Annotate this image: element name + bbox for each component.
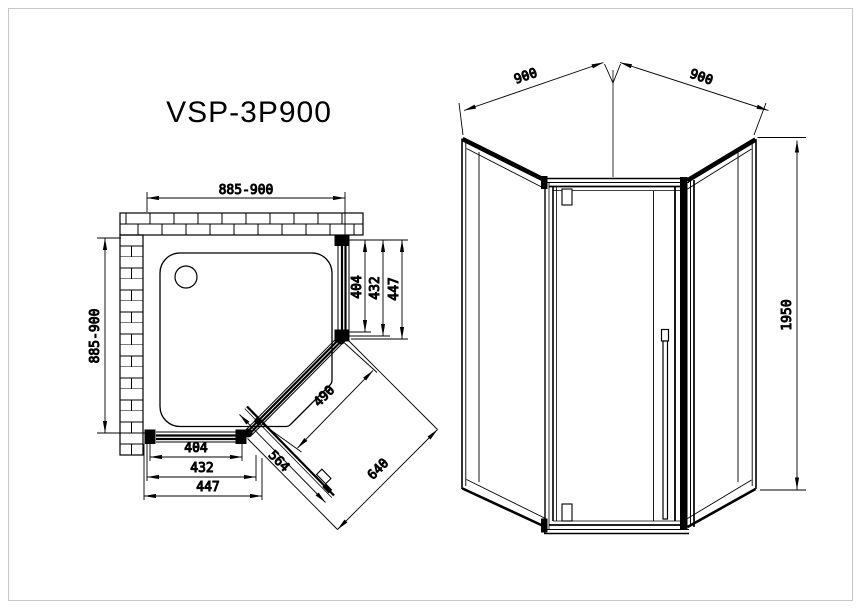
- dim-width-top-label: 885-900: [219, 183, 274, 198]
- dim-bottom-447-label: 447: [196, 480, 219, 495]
- junction-post-right: [680, 177, 688, 530]
- door-hinge-bottom: [562, 504, 572, 521]
- cad-drawing: VSP-3P900: [0, 0, 861, 609]
- junction-post-left-top: [541, 176, 548, 189]
- dim-depth-left-label: 885-900: [88, 309, 103, 364]
- dim-right-432-label: 432: [368, 276, 383, 299]
- product-title: VSP-3P900: [166, 96, 332, 129]
- door-hinge-top: [562, 189, 572, 205]
- dim-1950-label: 1950: [780, 299, 795, 330]
- wall-top-brick: [120, 213, 363, 235]
- drawing-page: VSP-3P900: [0, 0, 861, 609]
- dim-bottom-432-label: 432: [190, 461, 213, 476]
- door-handle-elevation: [662, 330, 669, 520]
- dim-bottom-404-label: 404: [184, 441, 208, 456]
- junction-post-left-bottom: [541, 519, 548, 533]
- dim-right-404-label: 404: [350, 275, 365, 299]
- wall-bracket-left: [145, 430, 155, 444]
- wall-left-brick: [120, 235, 143, 455]
- wall-bracket-top: [335, 236, 349, 246]
- dim-right-447-label: 447: [387, 277, 402, 300]
